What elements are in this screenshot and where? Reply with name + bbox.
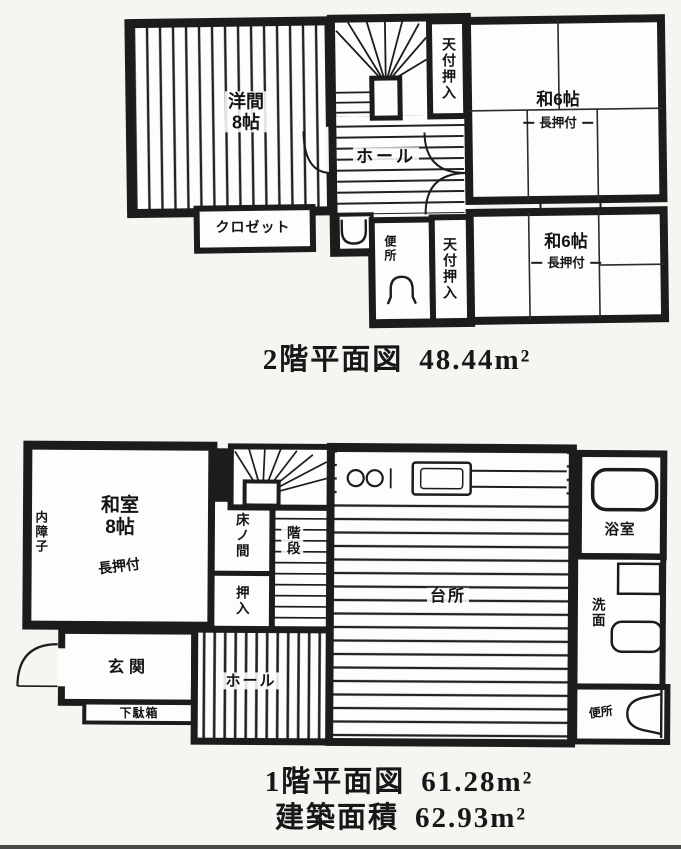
f2-toilet-label: 便所	[382, 235, 396, 263]
building-area-value: 62.93m²	[415, 802, 527, 835]
f2-ceiling-closet-top-label: 天付押入	[441, 37, 457, 101]
building-area-caption: 建築面積 62.93m²	[275, 794, 527, 836]
f1-closet-label: 押入	[233, 586, 249, 617]
f2-closet-label: クロゼット	[216, 219, 291, 235]
building-area-title: 建築面積	[275, 794, 399, 836]
f1-tatami-room-size: 8帖	[101, 517, 139, 539]
f2-tatami-b-sub-text: 長押付	[547, 256, 585, 270]
f2-ceiling-closet-bottom-label: 天付押入	[442, 237, 458, 301]
f1-bathroom-label: 浴室	[605, 523, 636, 540]
f2-western-room-size: 8帖	[228, 112, 264, 133]
f1-entrance-label: 玄関	[108, 659, 150, 677]
f2-hall-label: ホール	[353, 147, 419, 167]
f1-washroom-label: 洗面	[589, 598, 605, 629]
f1-tatami-room-name: 和室	[101, 495, 139, 517]
f1-tatami-room-label: 和室 8帖	[101, 495, 139, 539]
f2-tatami-b-sublabel: 長押付	[531, 256, 601, 270]
floor2-caption: 2階平面図 48.44m²	[263, 336, 532, 378]
f1-hall-label: ホール	[222, 672, 279, 689]
f2-tatami-a-sublabel: 長押付	[523, 116, 593, 130]
floor2-plan-group	[129, 14, 665, 327]
f1-tokonoma-label: 床ノ間	[233, 513, 249, 560]
floor1-plan-group	[17, 445, 669, 744]
floor2-caption-title: 2階平面図	[263, 336, 404, 378]
f1-stairs-label: 階段	[281, 526, 303, 557]
floor2-caption-area: 48.44m²	[419, 344, 531, 377]
f2-western-room-label: 洋間 8帖	[225, 91, 267, 132]
f2-tatami-b-label: 和6帖	[544, 232, 587, 252]
f1-kitchen-label: 台所	[427, 588, 469, 606]
f2-toilet-box	[372, 219, 433, 322]
door-arc-icon	[17, 644, 57, 686]
floorplan-document: 洋間 8帖 クロゼット 天付押入 ホール 和6帖 長押付 便所 天付押入 和6帖…	[0, 0, 681, 849]
f1-kitchen-counter	[337, 452, 567, 497]
scan-edge-artifact	[0, 845, 681, 849]
f1-shoe-cabinet-label: 下駄箱	[119, 707, 158, 721]
f2-tatami-a-sub-text: 長押付	[539, 116, 577, 130]
f2-tatami-a-label: 和6帖	[536, 90, 579, 110]
f2-western-room-name: 洋間	[228, 91, 264, 112]
f1-entrance-door-gap	[57, 648, 65, 686]
f1-inner-shoji-label: 内障子	[33, 510, 47, 554]
